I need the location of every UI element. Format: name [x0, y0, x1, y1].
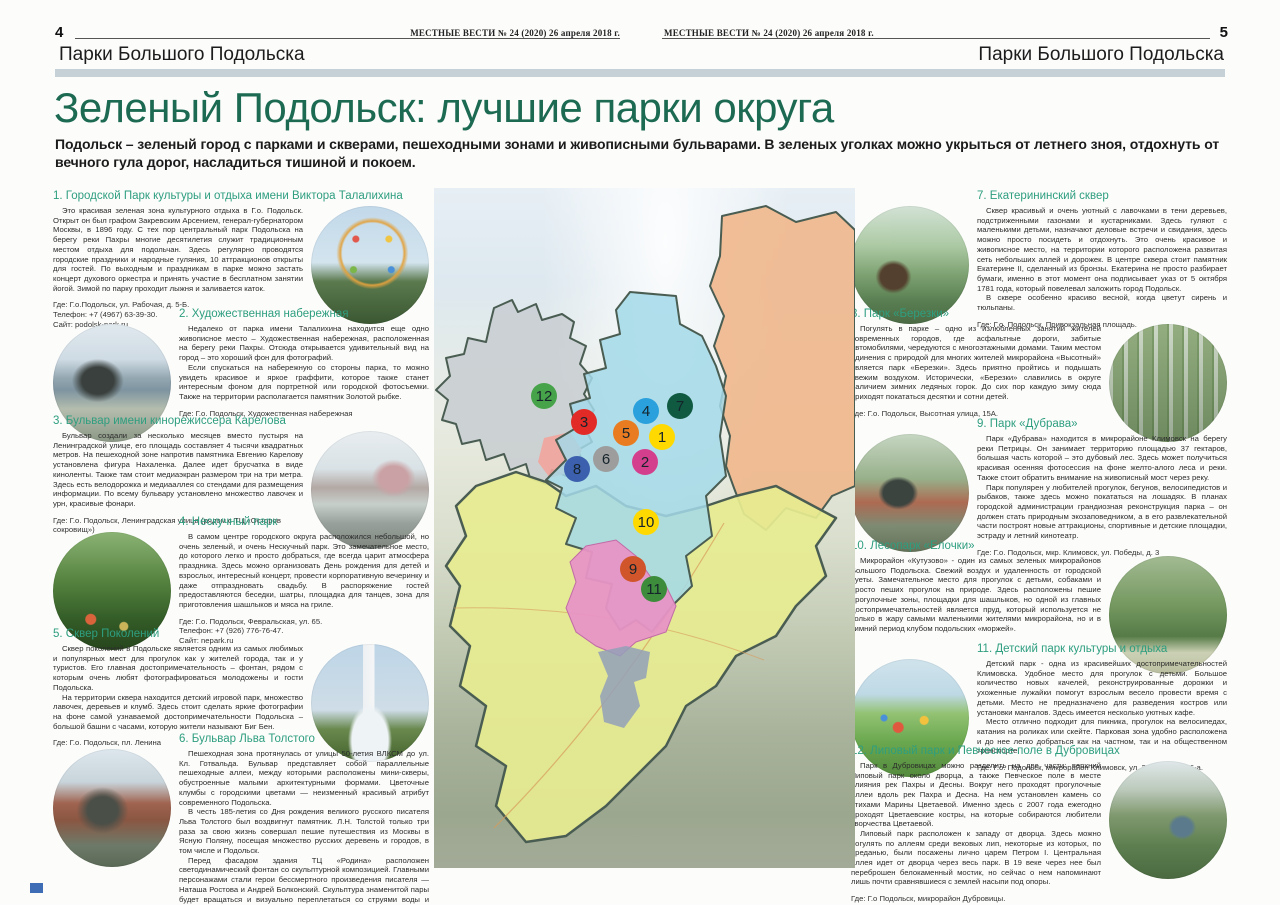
- map-marker-3: 3: [571, 409, 597, 435]
- park-section-title: 1. Городской Парк культуры и отдыха имен…: [53, 190, 429, 202]
- map-marker-4: 4: [633, 398, 659, 424]
- catherine-monument-photo: [851, 206, 969, 324]
- park-section-title: 12. Липовый парк и Певческое поле в Дубр…: [851, 745, 1227, 757]
- park-section-6: 6. Бульвар Льва ТолстогоПешеходная зона …: [53, 733, 429, 905]
- map-marker-6: 6: [593, 446, 619, 472]
- park-section-paragraph: Это красивая зеленая зона культурного от…: [53, 206, 303, 293]
- park-section-paragraph: Бульвар создали за несколько месяцев вме…: [53, 431, 303, 509]
- park-section-paragraph: Микрорайон «Кутузово» - один из самых зе…: [851, 556, 1101, 634]
- map-marker-2: 2: [632, 449, 658, 475]
- park-section-title: 5. Сквер Поколений: [53, 628, 429, 640]
- park-section-paragraph: Сквер красивый и очень уютный с лавочкам…: [977, 206, 1227, 293]
- park-section-paragraph: Парк в Дубровицах можно разделить на две…: [851, 761, 1101, 829]
- map-marker-5: 5: [613, 420, 639, 446]
- park-section-paragraph: Пешеходная зона протянулась от улицы 50-…: [179, 749, 429, 807]
- park-section-paragraph: Перед фасадом здания ТЦ «Родина» располо…: [179, 856, 429, 905]
- page-corner-mark: [30, 883, 43, 893]
- park-section-9: 9. Парк «Дубрава»Парк «Дубрава» находитс…: [851, 418, 1227, 557]
- park-section-title: 6. Бульвар Льва Толстого: [179, 733, 429, 745]
- article-title: Зеленый Подольск: лучшие парки округа: [54, 84, 1234, 132]
- park-section-paragraph: Парк «Дубрава» находится в микрорайоне К…: [977, 434, 1227, 483]
- park-section-text: Погулять в парке – одно из излюбленных з…: [851, 324, 1101, 418]
- park-section-paragraph: Парк популярен у любителей прогулок, бег…: [977, 483, 1227, 541]
- park-section-paragraph: В самом центре городского округа располо…: [179, 532, 429, 610]
- park-section-title: 2. Художественная набережная: [179, 308, 429, 320]
- ferris-wheel-photo: [311, 206, 429, 324]
- right-masthead: МЕСТНЫЕ ВЕСТИ № 24 (2020) 26 апреля 2018…: [664, 28, 874, 38]
- park-section-12: 12. Липовый парк и Певческое поле в Дубр…: [851, 745, 1227, 904]
- park-section-paragraph: Детский парк - одна из красивейших досто…: [977, 659, 1227, 717]
- tolstoy-monument-photo: [53, 749, 171, 867]
- park-section-location: Где: Г.о. Подольск, Высотная улица, 15А.: [851, 409, 1101, 419]
- header-bar: [55, 69, 1225, 77]
- map-marker-8: 8: [564, 456, 590, 482]
- map-marker-10: 10: [633, 509, 659, 535]
- right-kicker: Парки Большого Подольска: [978, 44, 1224, 66]
- park-section-paragraph: Погулять в парке – одно из излюбленных з…: [851, 324, 1101, 402]
- park-section-paragraph: Сквер поколений в Подольске является одн…: [53, 644, 303, 693]
- left-masthead: МЕСТНЫЕ ВЕСТИ № 24 (2020) 26 апреля 2018…: [410, 28, 620, 38]
- park-section-paragraph: На территории сквера находится детский и…: [53, 693, 303, 732]
- newspaper-spread: 4 МЕСТНЫЕ ВЕСТИ № 24 (2020) 26 апреля 20…: [0, 0, 1280, 905]
- left-kicker: Парки Большого Подольска: [59, 44, 305, 66]
- district-map: 123456789101112: [434, 188, 855, 868]
- park-section-text: Парк «Дубрава» находится в микрорайоне К…: [977, 434, 1227, 557]
- park-section-location: Где: Г.о Подольск, микрорайон Дубровицы.: [851, 894, 1101, 904]
- park-section-title: 11. Детский парк культуры и отдыха: [977, 643, 1227, 655]
- park-section-title: 3. Бульвар имени кинорежиссера Карелова: [53, 415, 429, 427]
- park-section-title: 4. Нескучный парк: [179, 516, 429, 528]
- park-section-paragraph: В честь 185-летия со Дня рождения велико…: [179, 807, 429, 856]
- park-section-text: Пешеходная зона протянулась от улицы 50-…: [179, 749, 429, 905]
- park-section-paragraph: Липовый парк расположен к западу от двор…: [851, 829, 1101, 887]
- park-section-title: 10. Лесопарк «Елочки»: [851, 540, 1227, 552]
- park-section-paragraph: Если спускаться на набережную со стороны…: [179, 363, 429, 402]
- map-marker-7: 7: [667, 393, 693, 419]
- aerial-river-park-photo: [1109, 761, 1227, 879]
- right-page-number: 5: [1220, 24, 1228, 41]
- park-section-title: 7. Екатерининский сквер: [977, 190, 1227, 202]
- left-page-number: 4: [55, 24, 63, 41]
- park-section-text: Микрорайон «Кутузово» - один из самых зе…: [851, 556, 1101, 634]
- map-marker-11: 11: [641, 576, 667, 602]
- map-region-orange: [710, 206, 855, 530]
- article-lede: Подольск – зеленый город с парками и скв…: [55, 136, 1227, 171]
- map-marker-12: 12: [531, 383, 557, 409]
- park-section-title: 8. Парк «Березки»: [851, 308, 1227, 320]
- map-marker-9: 9: [620, 556, 646, 582]
- dubrava-statue-photo: [851, 434, 969, 552]
- park-section-text: Недалеко от парка имени Талалихина наход…: [179, 324, 429, 418]
- park-section-title: 9. Парк «Дубрава»: [977, 418, 1227, 430]
- park-section-paragraph: Недалеко от парка имени Талалихина наход…: [179, 324, 429, 363]
- park-section-text: Парк в Дубровицах можно разделить на две…: [851, 761, 1101, 904]
- map-marker-1: 1: [649, 424, 675, 450]
